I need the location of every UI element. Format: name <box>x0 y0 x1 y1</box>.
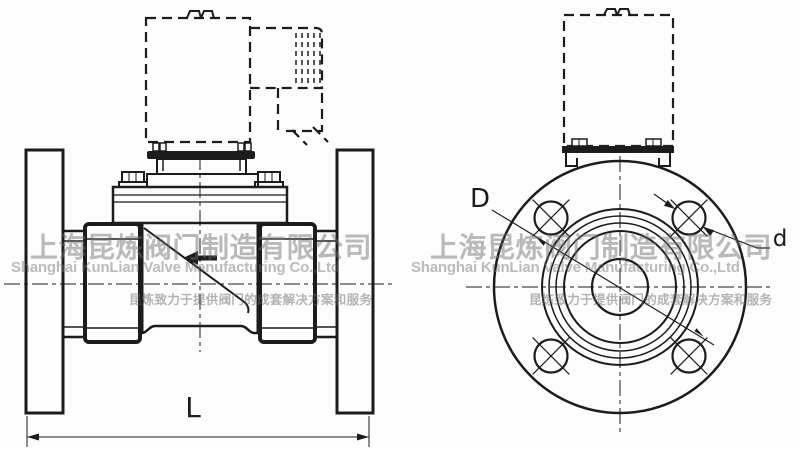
solenoid-coil-outline <box>146 18 250 142</box>
dim-d-arrow-upper <box>664 200 675 209</box>
side-view: D d <box>466 9 787 432</box>
inlet-flange <box>26 150 63 413</box>
connector-box-outline <box>250 28 322 88</box>
plate-brackets <box>566 153 670 166</box>
bonnet-lower-block <box>147 174 258 187</box>
bolt-hole-label-d: d <box>773 226 788 252</box>
dimension-D: D <box>470 184 714 345</box>
dim-d-arrow-lower <box>703 227 714 236</box>
bolt-hole-bottom-right <box>671 338 708 375</box>
drawing-canvas: L <box>0 0 800 449</box>
bonnet-bolt-left <box>119 172 147 187</box>
coil-mounting-plate <box>147 151 255 159</box>
solenoid-coil-outline-side <box>564 15 673 146</box>
dim-D-arrow-upper <box>536 237 547 246</box>
internal-passage-line <box>144 228 248 313</box>
dim-arrow-left <box>27 434 39 441</box>
connector-hatch-lines <box>296 33 320 86</box>
coil-top-nuts <box>187 11 214 18</box>
bolt-circle-label-D: D <box>470 184 490 214</box>
coil-top-nuts-side <box>604 9 630 15</box>
outlet-hub <box>260 224 315 342</box>
inlet-hub <box>85 224 140 342</box>
bolt-hole-bottom-left <box>533 338 570 375</box>
front-view: L <box>4 11 396 447</box>
bolt-hole-top-left <box>533 200 570 237</box>
dimension-L: L <box>27 391 369 447</box>
coil-mounting-plate-side <box>562 146 674 153</box>
bonnet-bolt-right <box>255 172 283 187</box>
connector-lower-box <box>278 88 322 131</box>
bolt-hole-top-right <box>671 200 708 237</box>
bonnet-upper-block <box>157 159 246 174</box>
plate-bolts <box>153 143 251 151</box>
dim-line-D <box>492 210 714 345</box>
outlet-flange <box>337 150 373 413</box>
valve-technical-drawing: L <box>0 0 800 449</box>
dim-arrow-right <box>357 434 369 441</box>
dim-label-L: L <box>185 391 201 424</box>
